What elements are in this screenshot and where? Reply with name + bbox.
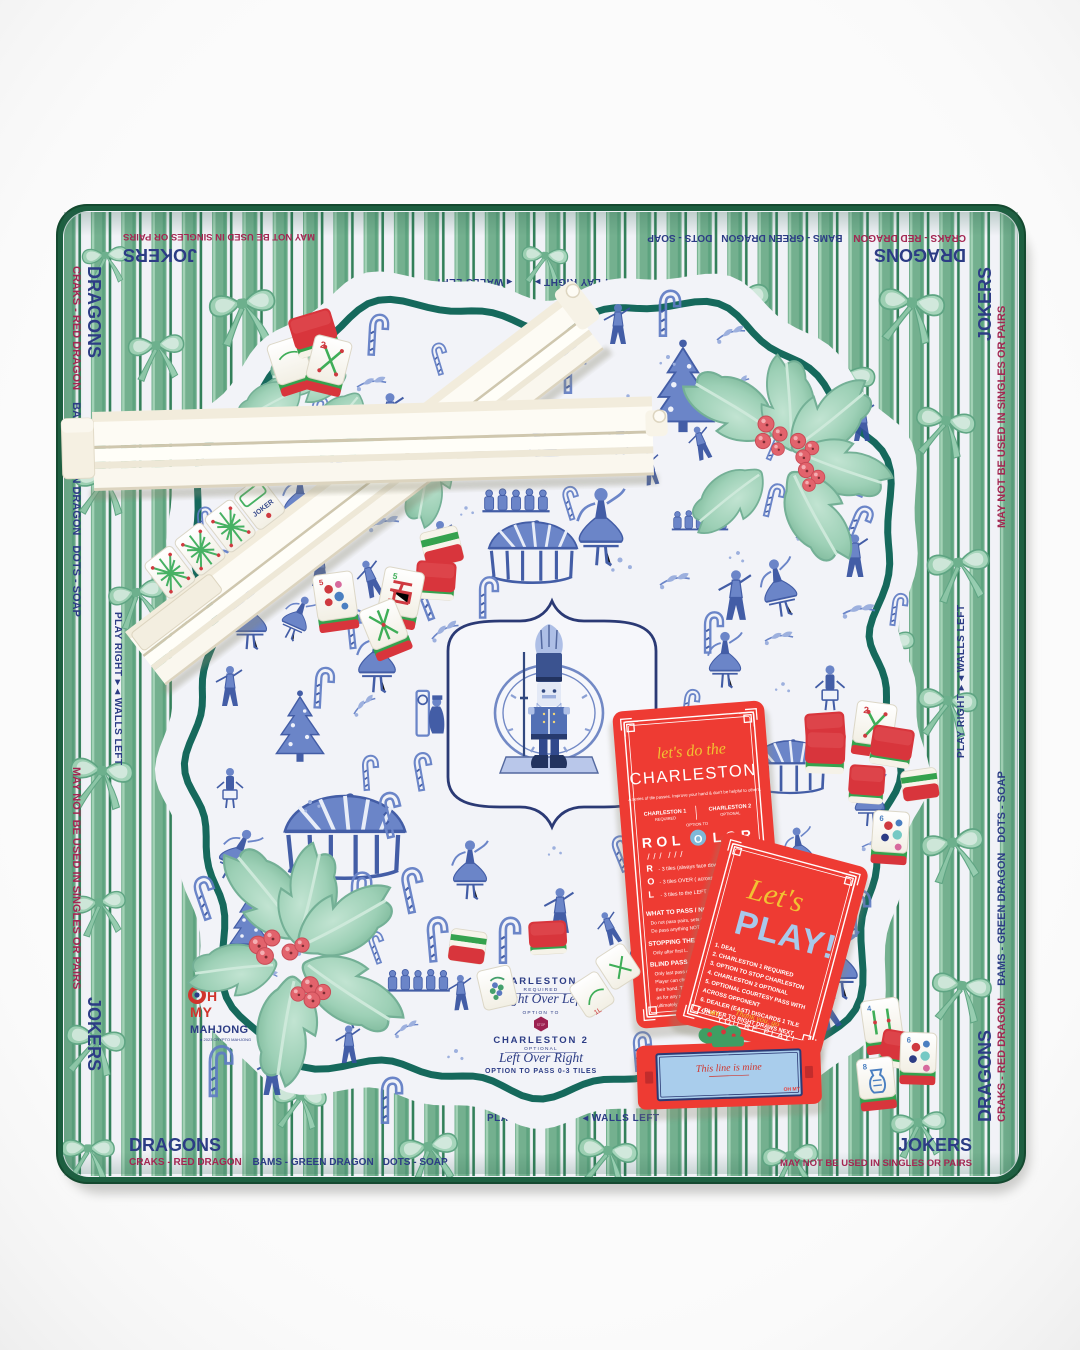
svg-text:MAY NOT BE USED IN SINGLES OR: MAY NOT BE USED IN SINGLES OR PAIRS bbox=[780, 1158, 972, 1169]
svg-text:PLAY RIGHT ▸: PLAY RIGHT ▸ bbox=[956, 684, 967, 758]
svg-text:JOKERS: JOKERS bbox=[898, 1135, 972, 1155]
svg-text:MAY NOT BE USED IN SINGLES OR: MAY NOT BE USED IN SINGLES OR PAIRS bbox=[70, 767, 82, 989]
svg-text:ROL: ROL bbox=[641, 832, 685, 851]
svg-text:PLAY RIGHT ▸: PLAY RIGHT ▸ bbox=[112, 612, 123, 686]
svg-text:JOKERS: JOKERS bbox=[975, 267, 995, 341]
svg-text:OPTION TO PASS 0-3 TILES: OPTION TO PASS 0-3 TILES bbox=[485, 1068, 597, 1075]
svg-text:O: O bbox=[694, 833, 704, 846]
svg-text:◂ WALLS LEFT: ◂ WALLS LEFT bbox=[956, 604, 967, 682]
svg-text:CRAKS - RED DRAGON BAMS - GREE: CRAKS - RED DRAGON BAMS - GREEN DRAGONDO… bbox=[996, 771, 1008, 1122]
svg-text:CHARLESTON 2: CHARLESTON 2 bbox=[493, 1035, 588, 1046]
svg-text:R: R bbox=[646, 863, 654, 874]
svg-text:O: O bbox=[647, 876, 655, 887]
svg-text:MY: MY bbox=[190, 1004, 213, 1020]
svg-text:DRAGONS: DRAGONS bbox=[975, 1030, 995, 1122]
svg-text:OPTION TO: OPTION TO bbox=[522, 1010, 559, 1016]
svg-text:● 2023 CRYPTO MAHJONG: ● 2023 CRYPTO MAHJONG bbox=[200, 1037, 251, 1042]
svg-text:DRAGONS: DRAGONS bbox=[129, 1135, 221, 1155]
svg-text:STOP: STOP bbox=[537, 1023, 546, 1027]
svg-text:CRAKS - RED DRAGON BAMS - GREE: CRAKS - RED DRAGON BAMS - GREEN DRAGONDO… bbox=[129, 1157, 448, 1168]
svg-text:This line is mine: This line is mine bbox=[696, 1062, 763, 1075]
svg-text:MAY NOT BE USED IN SINGLES OR: MAY NOT BE USED IN SINGLES OR PAIRS bbox=[996, 306, 1008, 528]
svg-text:JOKERS: JOKERS bbox=[84, 997, 104, 1071]
svg-text:◂ WALLS LEFT: ◂ WALLS LEFT bbox=[112, 688, 123, 766]
svg-text:MAHJONG: MAHJONG bbox=[190, 1024, 248, 1036]
svg-text:DRAGONS: DRAGONS bbox=[84, 266, 104, 358]
svg-text:Left Over Right: Left Over Right bbox=[498, 1050, 584, 1065]
svg-text:OH MY: OH MY bbox=[784, 1086, 801, 1093]
